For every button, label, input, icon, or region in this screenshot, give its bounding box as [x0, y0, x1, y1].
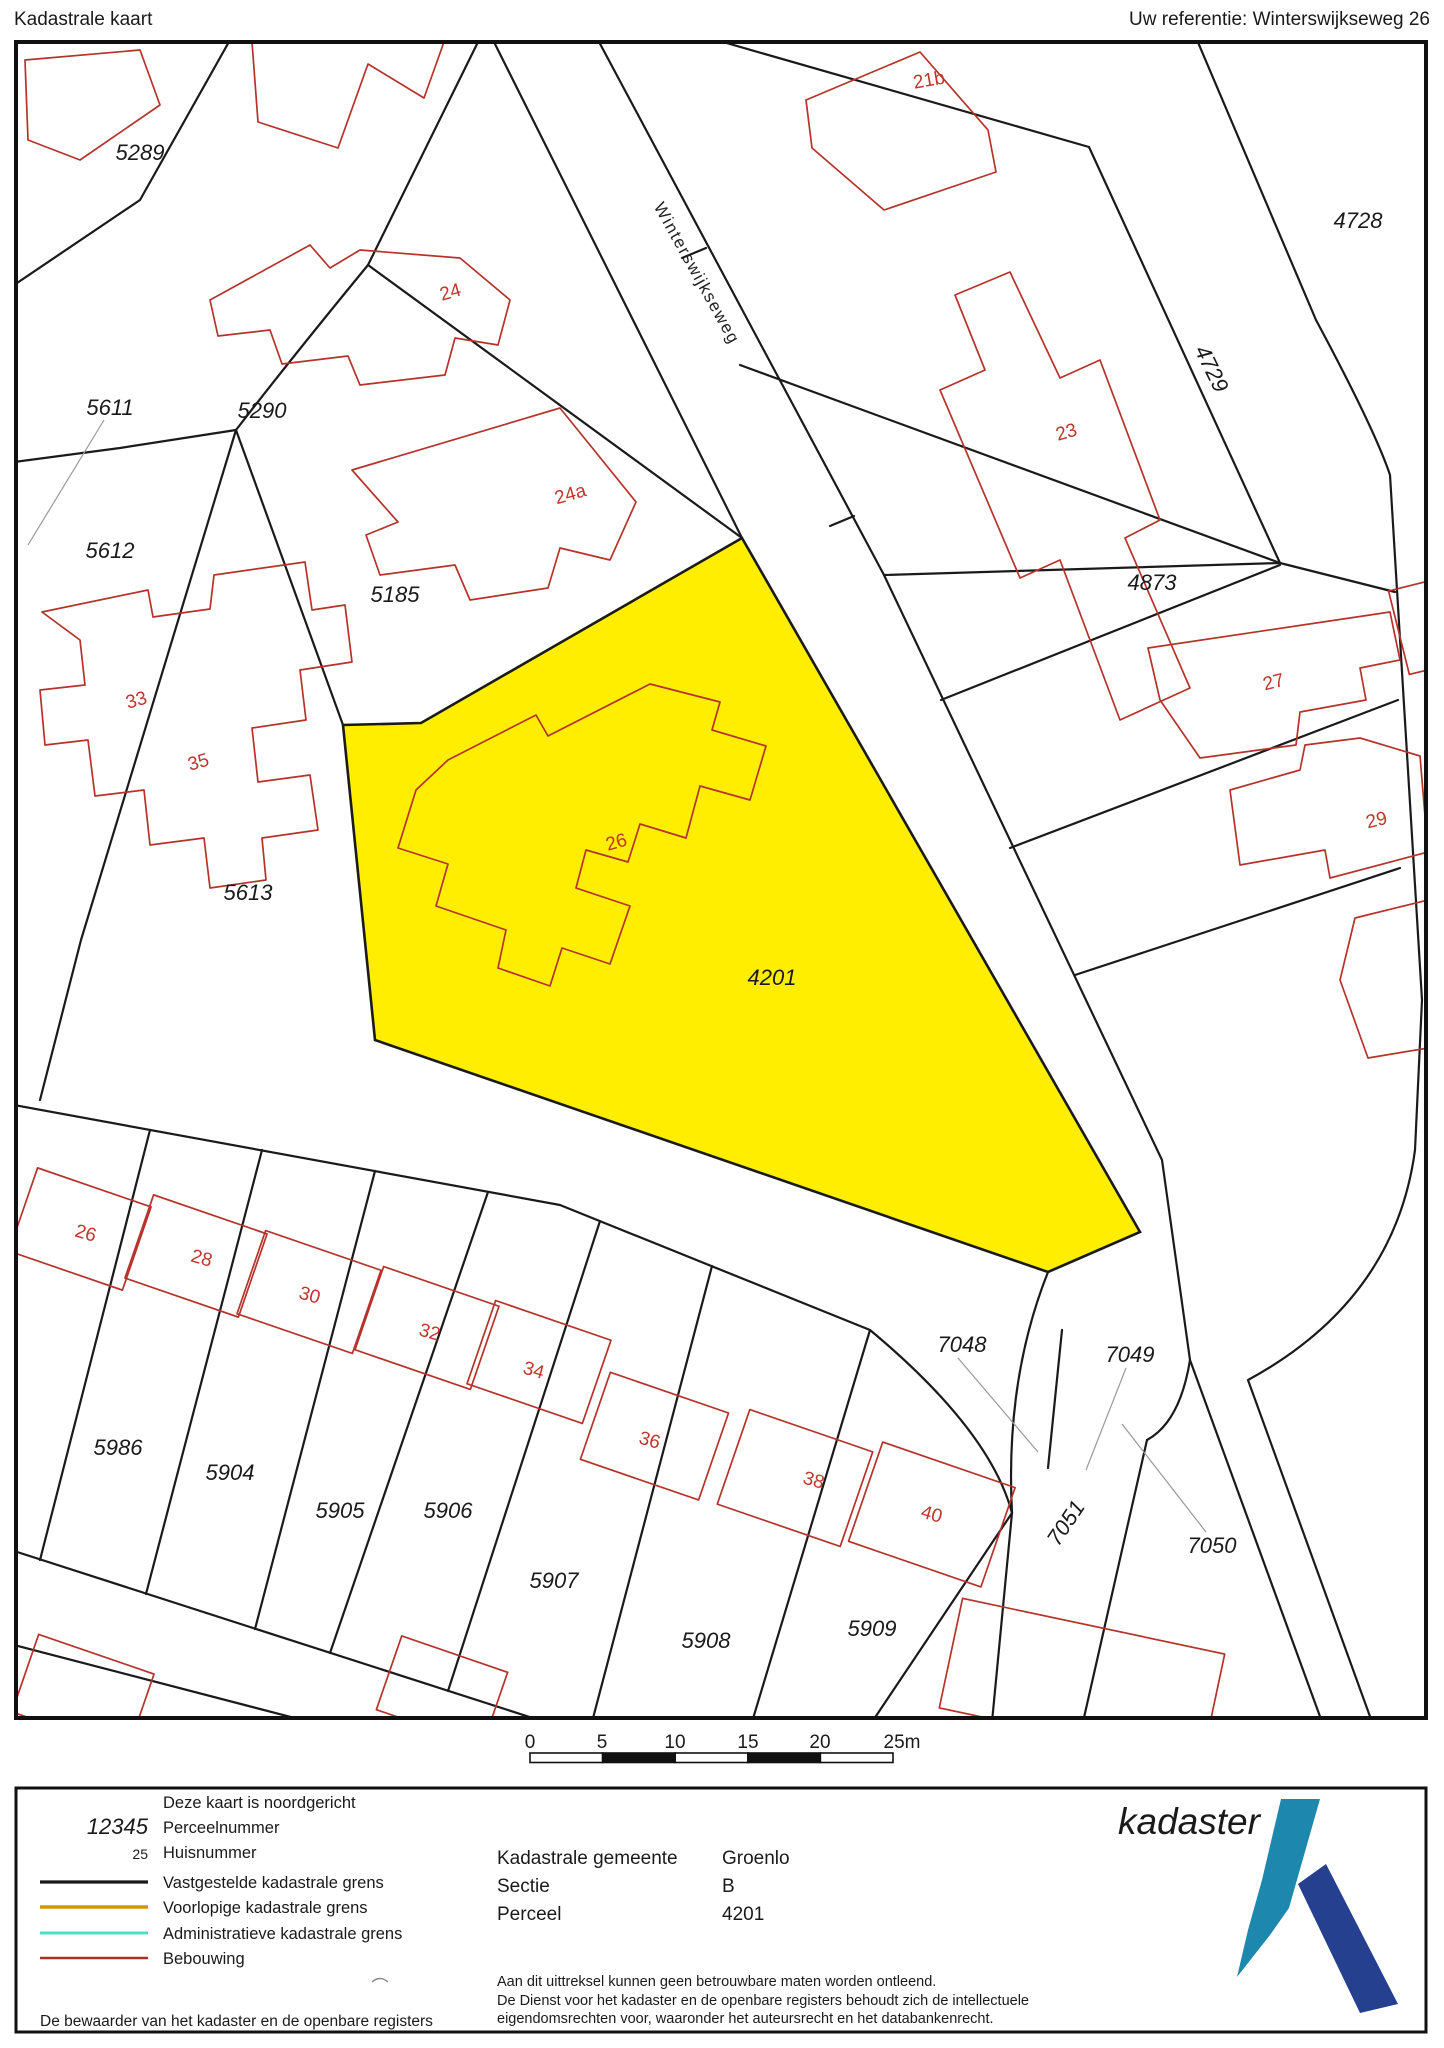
scale-tick-label: 0: [525, 1732, 536, 1753]
page-title: Kadastrale kaart: [14, 9, 153, 30]
kadaster-logo-text: kadaster: [1118, 1801, 1262, 1842]
disclaimer-line: De Dienst voor het kadaster en de openba…: [497, 1993, 1029, 2009]
parcel-label: 5905: [316, 1498, 366, 1523]
parcel-label: 5185: [371, 582, 421, 607]
reference-text: Uw referentie: Winterswijkseweg 26: [1129, 9, 1430, 30]
parcel-label: 4873: [1128, 570, 1178, 595]
parcel-label: 7050: [1188, 1533, 1238, 1558]
info-value: B: [722, 1876, 735, 1897]
legend-parcel-label: Perceelnummer: [163, 1819, 280, 1837]
parcel-label: 5904: [206, 1460, 255, 1485]
parcel-label: 5909: [848, 1616, 897, 1641]
legend-item-label: Voorlopige kadastrale grens: [163, 1899, 368, 1917]
parcel-label: 7049: [1106, 1342, 1155, 1367]
legend-parcel-sample: 12345: [87, 1814, 149, 1839]
scale-tick-label: 25m: [884, 1732, 921, 1753]
parcel-label: 5908: [682, 1628, 732, 1653]
parcel-label: 5986: [94, 1435, 144, 1460]
legend-item-label: Administratieve kadastrale grens: [163, 1925, 402, 1943]
parcel-label: 7048: [938, 1332, 988, 1357]
scale-tick-label: 10: [664, 1732, 685, 1753]
info-label: Kadastrale gemeente: [497, 1848, 678, 1869]
legend-north-note: Deze kaart is noordgericht: [163, 1794, 356, 1812]
parcel-label: 5289: [116, 140, 165, 165]
map-content: Winterswijkseweg 5289 5290 5611 5612 518…: [9, 40, 1444, 1764]
info-value: 4201: [722, 1904, 764, 1925]
scale-tick-label: 5: [597, 1732, 608, 1753]
info-value: Groenlo: [722, 1848, 790, 1869]
legend-house-label: Huisnummer: [163, 1844, 257, 1862]
legend-item-label: Vastgestelde kadastrale grens: [163, 1874, 384, 1892]
cadastral-extract: Kadastrale kaart Uw referentie: Wintersw…: [0, 0, 1444, 2048]
scale-tick-label: 20: [809, 1732, 830, 1753]
parcel-label: 5612: [86, 538, 135, 563]
disclaimer-line: Aan dit uittreksel kunnen geen betrouwba…: [497, 1974, 936, 1990]
disclaimer-line: eigendomsrechten voor, waaronder het aut…: [497, 2011, 994, 2027]
parcel-label: 4201: [748, 965, 797, 990]
parcel-label: 5290: [238, 398, 288, 423]
info-label: Sectie: [497, 1876, 550, 1897]
parcel-label: 5611: [86, 395, 133, 420]
parcel-label: 5906: [424, 1498, 474, 1523]
parcel-label: 5907: [530, 1568, 580, 1593]
scale-bar: 0 5 10 15 20 25m: [525, 1732, 921, 1763]
info-label: Perceel: [497, 1904, 561, 1925]
keeper-note: De bewaarder van het kadaster en de open…: [40, 2013, 433, 2030]
parcel-label: 5613: [224, 880, 274, 905]
scale-tick-label: 15: [737, 1732, 758, 1753]
parcel-label: 4728: [1334, 208, 1384, 233]
legend-house-sample: 25: [132, 1846, 148, 1862]
legend-item-label: Bebouwing: [163, 1950, 245, 1968]
